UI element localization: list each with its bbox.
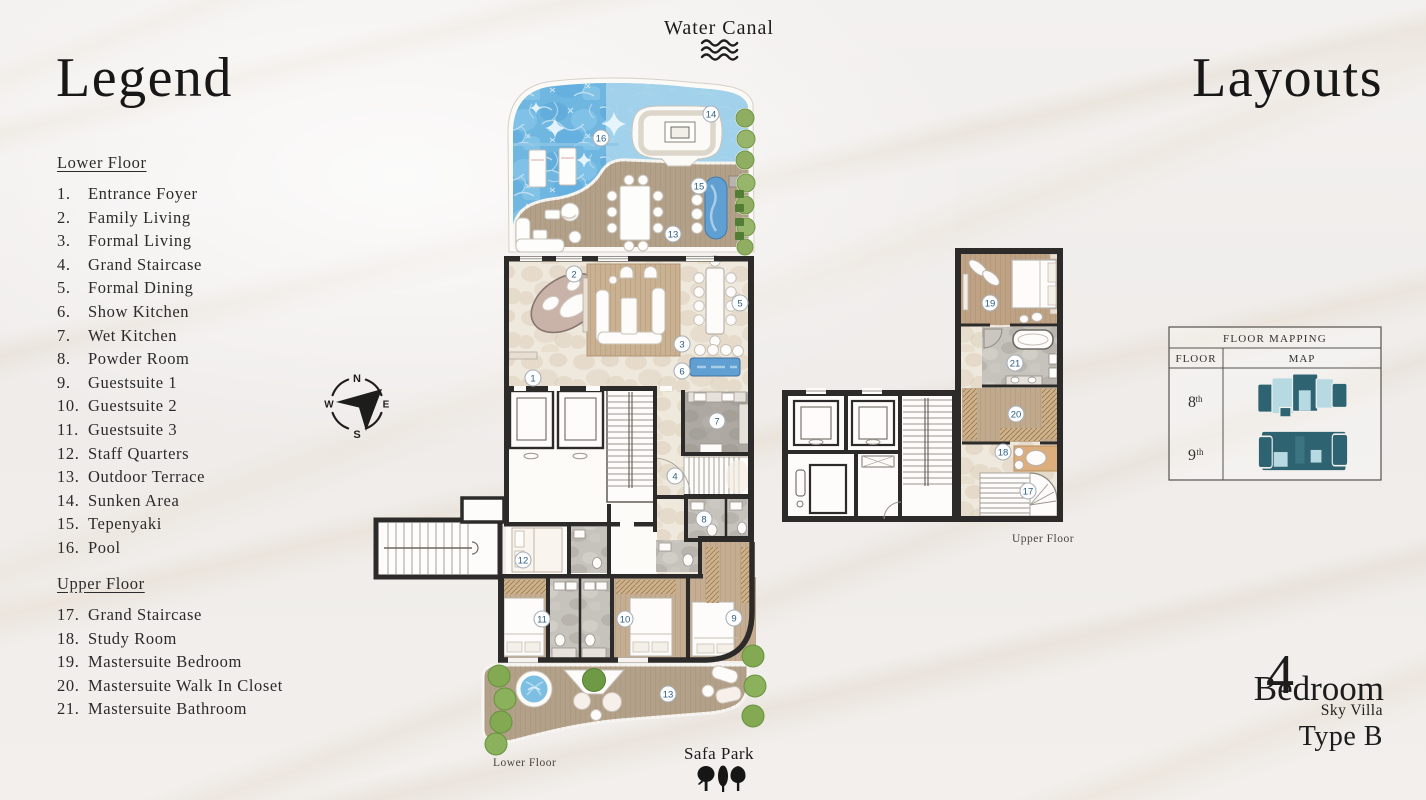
svg-text:9: 9 (1188, 447, 1196, 464)
svg-text:FLOOR MAPPING: FLOOR MAPPING (1223, 333, 1327, 345)
svg-text:21: 21 (1010, 359, 1021, 370)
svg-text:15: 15 (694, 182, 705, 193)
svg-text:18: 18 (998, 448, 1009, 459)
svg-text:12: 12 (518, 556, 529, 567)
svg-text:10: 10 (620, 615, 631, 626)
svg-text:4: 4 (672, 472, 677, 483)
svg-text:3: 3 (679, 340, 684, 351)
svg-text:16: 16 (596, 134, 607, 145)
svg-text:13: 13 (663, 690, 674, 701)
svg-text:19: 19 (985, 299, 996, 310)
svg-text:th: th (1195, 394, 1203, 404)
svg-text:20: 20 (1011, 410, 1022, 421)
svg-text:6: 6 (679, 367, 684, 378)
svg-text:MAP: MAP (1289, 353, 1316, 365)
svg-text:2: 2 (571, 270, 576, 281)
svg-text:E: E (383, 400, 390, 411)
svg-text:7: 7 (714, 417, 719, 428)
svg-text:FLOOR: FLOOR (1175, 353, 1216, 365)
svg-text:9: 9 (731, 614, 736, 625)
svg-text:17: 17 (1023, 487, 1034, 498)
svg-text:5: 5 (737, 299, 742, 310)
svg-text:th: th (1196, 447, 1204, 457)
svg-text:1: 1 (530, 374, 535, 385)
svg-text:W: W (324, 400, 334, 411)
svg-text:S: S (353, 429, 360, 441)
svg-text:13: 13 (668, 230, 679, 241)
svg-text:11: 11 (537, 615, 547, 626)
svg-text:N: N (353, 373, 361, 385)
svg-text:14: 14 (706, 110, 717, 121)
svg-text:8: 8 (701, 515, 706, 526)
